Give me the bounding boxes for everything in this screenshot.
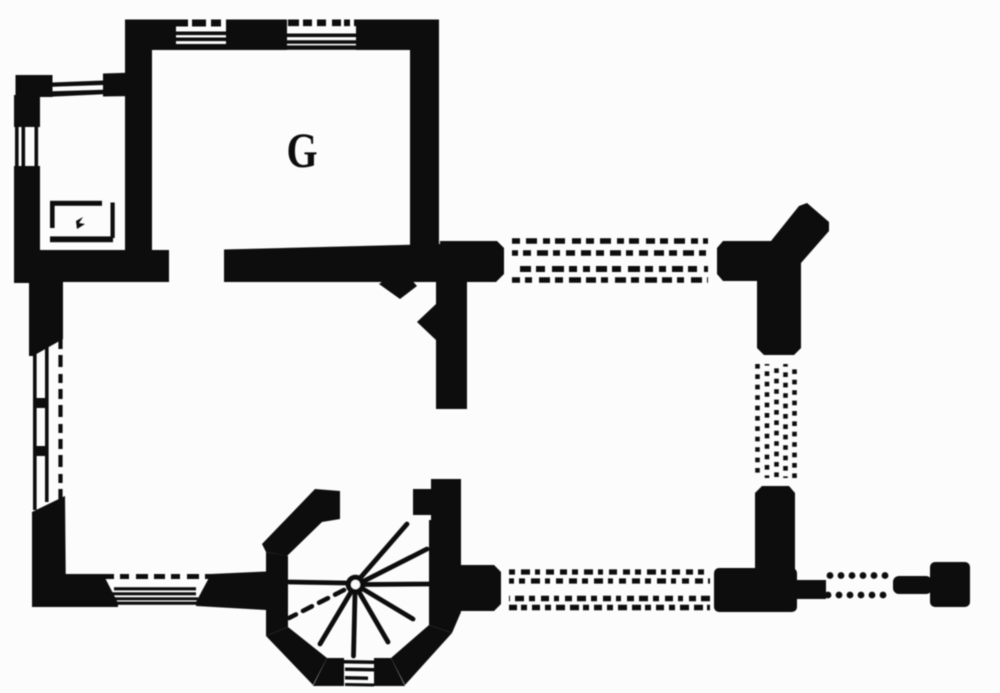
svg-text:G: G <box>286 123 317 178</box>
